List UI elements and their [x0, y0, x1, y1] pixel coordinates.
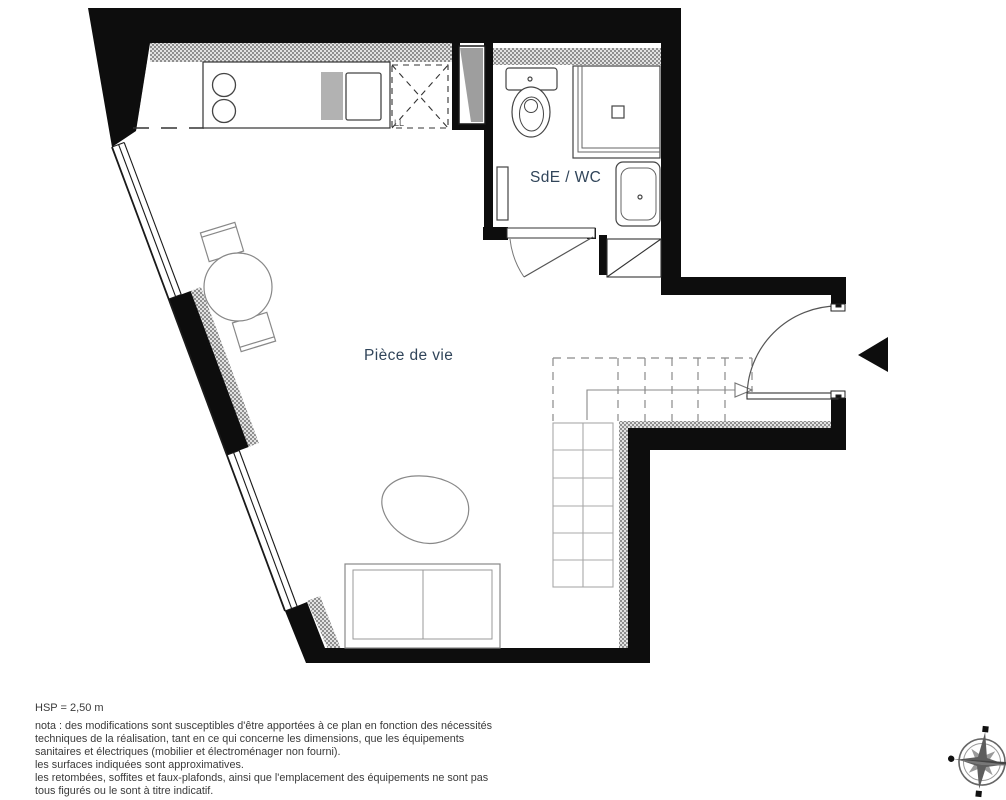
dining-table: [204, 253, 272, 321]
floor-plan-page: LL: [0, 0, 1006, 800]
entry-door-leaf: [747, 393, 838, 399]
washer-label: LL: [394, 118, 404, 128]
under-stair-closet: [607, 239, 661, 277]
radiator: [497, 167, 508, 220]
kitchen-sink: [346, 73, 381, 120]
cooktop-burner: [213, 74, 236, 97]
svg-text:tous figurés ou le sont à titr: tous figurés ou le sont à titre indicati…: [35, 785, 213, 797]
step-wall: [628, 428, 846, 450]
right-lower-wall: [628, 428, 650, 663]
bathroom-door-left-cap: [483, 227, 508, 240]
entry-wall-upper: [831, 295, 846, 304]
sofa-bed: [345, 564, 500, 648]
bathroom-right-wall: [661, 8, 681, 295]
svg-text:techniques de la réalisation,: techniques de la réalisation, tant en ce…: [35, 733, 465, 745]
washbasin: [616, 162, 660, 226]
shower-drain: [612, 106, 624, 118]
floor-plan-drawing: LL: [0, 0, 1006, 800]
svg-text:les surfaces indiquées sont ap: les surfaces indiquées sont approximativ…: [35, 759, 244, 771]
entry-wall-lower: [831, 398, 846, 450]
living-room-label: Pièce de vie: [364, 347, 453, 364]
background: [0, 0, 1006, 800]
svg-text:sanitaires et électriques (mob: sanitaires et électriques (mobilier et é…: [35, 746, 340, 758]
svg-text:les retombées, soffites et fau: les retombées, soffites et faux-plafonds…: [35, 772, 489, 784]
ceiling-height-note: HSP = 2,50 m: [35, 702, 104, 714]
cooktop-burner: [213, 100, 236, 123]
bathroom-label: SdE / WC: [530, 169, 601, 186]
closet-left-strip: [599, 235, 607, 275]
duct-shaft: [459, 46, 485, 124]
svg-text:nota : des modifications sont: nota : des modifications sont susceptibl…: [35, 720, 493, 732]
vestibule-top-wall: [661, 277, 846, 295]
shower: [573, 66, 660, 158]
